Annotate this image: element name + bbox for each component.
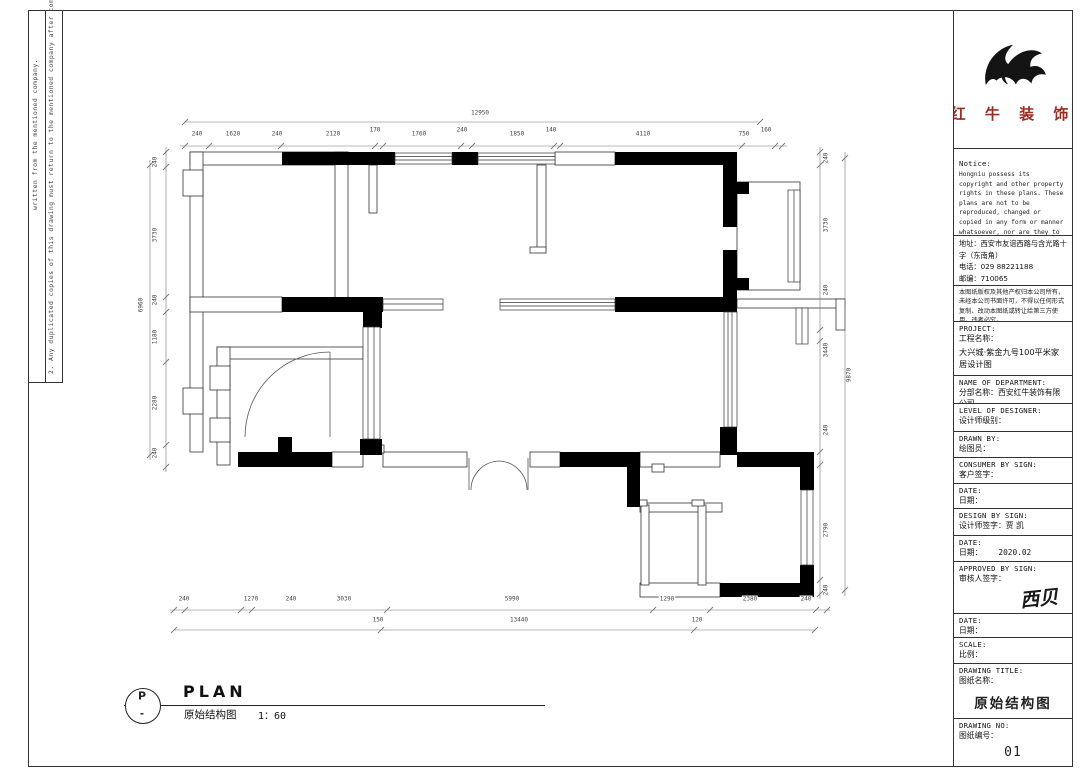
field-date-2: DATE: 日期：2020.02 (954, 536, 1072, 562)
copyright-statement: 本图纸版权及其他产权归本公司所有，未经本公司书面许可，不得以任何形式复制、改动本… (954, 286, 1072, 322)
field-design-sign: DESIGN BY SIGN: 设计师签字：贾 凯 (954, 509, 1072, 536)
plan-title: PLAN (183, 682, 247, 701)
notice-body: Hongniu possess its copyright and other … (959, 170, 1067, 236)
design-date-value: 2020.02 (998, 548, 1031, 559)
field-consumer-sign: CONSUMER BY SIGN: 客户签字： (954, 458, 1072, 484)
field-date-3: DATE: 日期： (954, 614, 1072, 638)
title-block: 红 牛 装 饰 Notice: Hongniu possess its copy… (953, 10, 1072, 766)
project-value: 大兴城·紫金九号100平米家居设计图 (959, 347, 1067, 371)
plan-scale: 1：60 (258, 707, 286, 722)
thin-walls (183, 152, 845, 597)
designer-signature: 贾 凯 (1006, 521, 1024, 530)
phone-line: 电话：029 88221188 (959, 261, 1067, 273)
callout-line (124, 705, 545, 706)
field-date-1: DATE: 日期： (954, 484, 1072, 509)
drawing-title-value: 原始结构图 (959, 692, 1067, 712)
address-line: 地址：西安市友谊西路与含光路十字（东南角） (959, 238, 1067, 261)
bull-logo-icon (974, 35, 1052, 97)
callout-bubble-bottom: - (140, 709, 144, 720)
notice-section: Notice: Hongniu possess its copyright an… (954, 149, 1072, 236)
drawing-sheet: written from the mentioned company. 2. A… (0, 0, 1080, 778)
field-drawn-by: DRAWN BY: 绘图员： (954, 432, 1072, 458)
drawing-number-value: 01 (959, 745, 1067, 760)
dimension-lines (147, 119, 848, 633)
field-project: PROJECT: 工程名称： 大兴城·紫金九号100平米家居设计图 (954, 322, 1072, 376)
field-scale: SCALE: 比例： (954, 638, 1072, 664)
field-department: NAME OF DEPARTMENT: 分部名称：西安红牛装饰有限公司 (954, 376, 1072, 404)
door-swings (245, 352, 528, 490)
notice-label: Notice: (959, 159, 991, 168)
contact-section: 地址：西安市友谊西路与含光路十字（东南角） 电话：029 88221188 邮编… (954, 236, 1072, 286)
company-logo-block: 红 牛 装 饰 (954, 10, 1072, 149)
field-approved-sign: APPROVED BY SIGN: 审核人签字： 西贝 (954, 562, 1072, 614)
callout-bubble-top: P (138, 690, 146, 703)
field-drawing-no: DRAWING NO: 图纸编号： 01 (954, 719, 1072, 766)
company-name: 红 牛 装 饰 (954, 103, 1072, 124)
postcode-line: 邮编：710065 (959, 273, 1067, 285)
windows (363, 153, 813, 565)
field-drawing-title: DRAWING TITLE: 图纸名称： 原始结构图 (954, 664, 1072, 719)
approver-signature: 西贝 (1019, 582, 1060, 613)
floor-plan-drawing (0, 0, 1080, 778)
plan-subtitle: 原始结构图 (184, 707, 237, 722)
field-designer-level: LEVEL OF DESIGNER: 设计师级别： (954, 404, 1072, 432)
